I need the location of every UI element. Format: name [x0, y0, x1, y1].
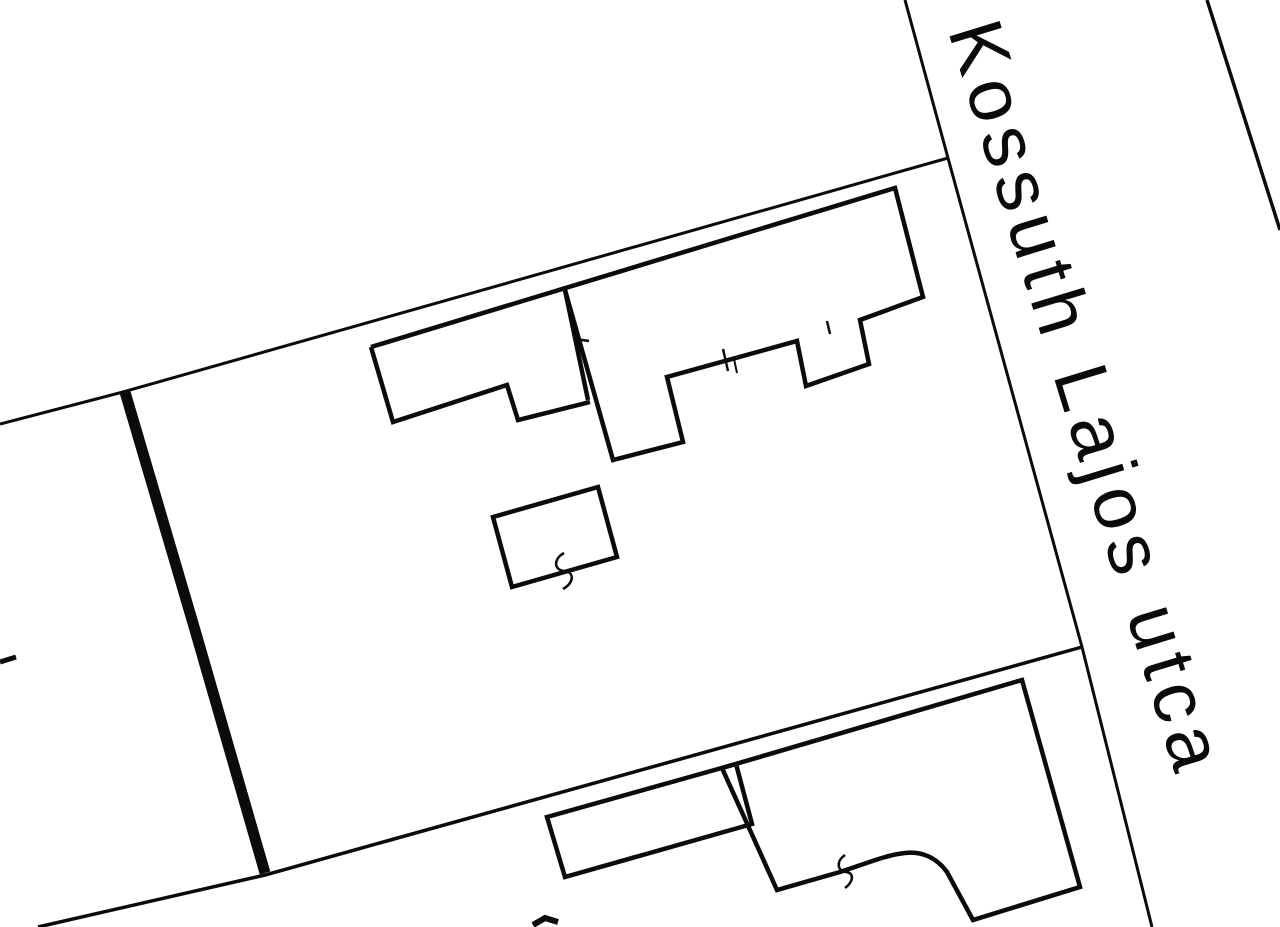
- map-viewport[interactable]: Kossuth Lajos utca: [0, 0, 1280, 927]
- survey-tick-4: [827, 321, 830, 334]
- squiggle-mark-2: [839, 855, 852, 888]
- building-lower-outline: [722, 680, 1080, 920]
- building-small-outline: [493, 487, 617, 587]
- building-strip-outline: [547, 764, 752, 877]
- left-edge-tick: [0, 657, 16, 662]
- building-upper-left-wing: [371, 347, 590, 422]
- street-right-edge: [1207, 0, 1280, 230]
- building-upper-outline: [371, 188, 923, 460]
- bottom-cutoff-text-mark: [533, 918, 558, 925]
- building-upper-internal-wall: [565, 290, 588, 400]
- survey-tick-3: [734, 359, 737, 373]
- selected-parcel-thick-boundary: [125, 392, 265, 873]
- lower-parcel-boundary: [38, 647, 1082, 927]
